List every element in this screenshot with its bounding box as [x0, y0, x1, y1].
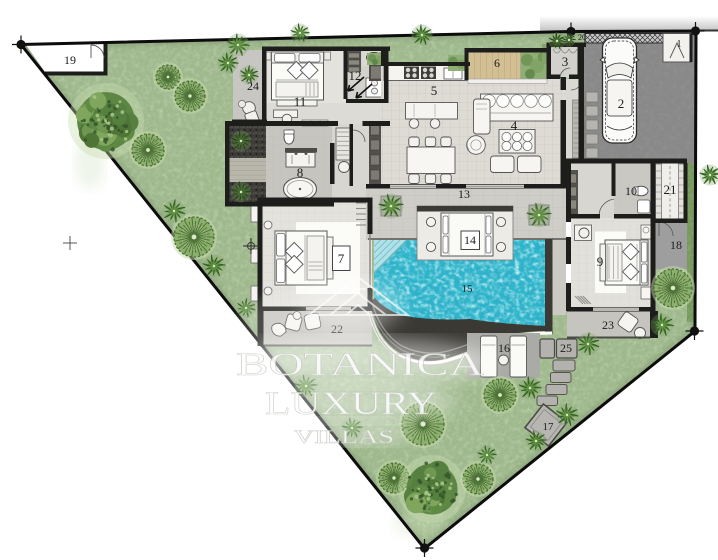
svg-text:17: 17 [543, 421, 555, 433]
svg-text:23: 23 [602, 318, 614, 332]
svg-text:BOTANICA: BOTANICA [236, 347, 484, 383]
svg-text:6: 6 [494, 56, 500, 70]
svg-text:25: 25 [560, 341, 572, 355]
svg-text:7: 7 [338, 251, 345, 266]
svg-text:LUXURY: LUXURY [265, 386, 437, 422]
svg-text:16: 16 [498, 341, 510, 355]
svg-text:5: 5 [431, 83, 438, 98]
svg-text:24: 24 [247, 79, 259, 93]
svg-text:9: 9 [597, 254, 604, 269]
svg-text:21: 21 [664, 182, 677, 197]
svg-text:13: 13 [458, 187, 470, 201]
svg-text:10: 10 [625, 184, 637, 198]
svg-text:14: 14 [464, 233, 476, 247]
svg-text:19: 19 [64, 53, 76, 67]
svg-text:3: 3 [562, 54, 569, 69]
svg-text:4: 4 [511, 118, 518, 133]
svg-text:18: 18 [670, 238, 682, 252]
svg-text:15: 15 [462, 283, 474, 295]
svg-text:11: 11 [294, 94, 307, 109]
svg-text:12: 12 [349, 68, 362, 83]
svg-text:1: 1 [677, 39, 682, 50]
svg-text:20: 20 [578, 33, 586, 42]
svg-text:VILLAS: VILLAS [294, 427, 394, 448]
svg-text:2: 2 [618, 96, 625, 111]
svg-text:8: 8 [297, 165, 304, 180]
